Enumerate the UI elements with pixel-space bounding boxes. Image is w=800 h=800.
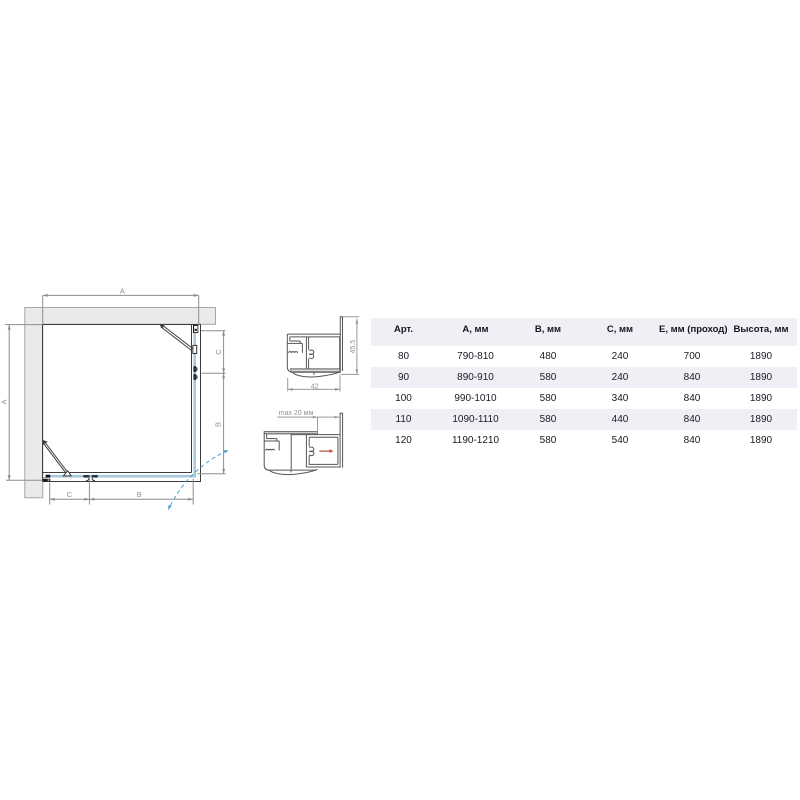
svg-text:A: A (0, 399, 9, 404)
svg-text:42: 42 (311, 381, 319, 390)
svg-text:C: C (214, 349, 223, 355)
svg-text:B: B (213, 422, 222, 427)
svg-text:B: B (137, 490, 142, 499)
svg-text:A: A (120, 287, 125, 296)
svg-text:C: C (67, 490, 73, 499)
svg-text:max 20 мм: max 20 мм (279, 410, 314, 417)
svg-text:45.5: 45.5 (350, 340, 357, 354)
